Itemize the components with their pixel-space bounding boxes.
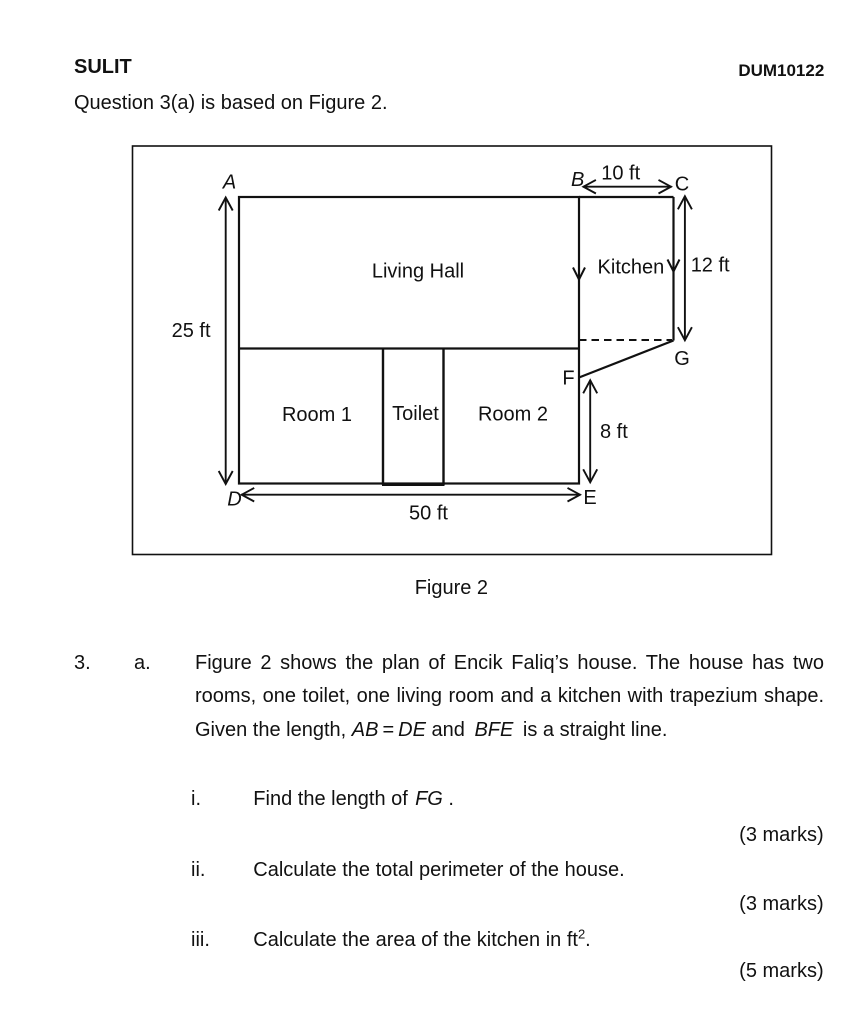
svg-text:C: C [675, 174, 689, 196]
svg-text:8 ft: 8 ft [600, 421, 628, 443]
svg-text:A: A [222, 172, 236, 194]
svg-text:E: E [583, 487, 596, 509]
svg-text:Room 2: Room 2 [478, 404, 548, 426]
svg-text:Toilet: Toilet [392, 403, 439, 425]
svg-text:25 ft: 25 ft [172, 320, 211, 342]
svg-text:Kitchen: Kitchen [598, 257, 665, 279]
svg-text:B: B [571, 169, 584, 191]
svg-text:10 ft: 10 ft [601, 163, 640, 185]
svg-text:12 ft: 12 ft [691, 255, 730, 277]
svg-text:F: F [562, 367, 574, 389]
svg-text:Room 1: Room 1 [282, 404, 352, 426]
svg-text:D: D [227, 489, 241, 511]
svg-text:G: G [674, 348, 690, 370]
svg-text:Living Hall: Living Hall [372, 261, 464, 283]
svg-text:50 ft: 50 ft [409, 503, 448, 525]
